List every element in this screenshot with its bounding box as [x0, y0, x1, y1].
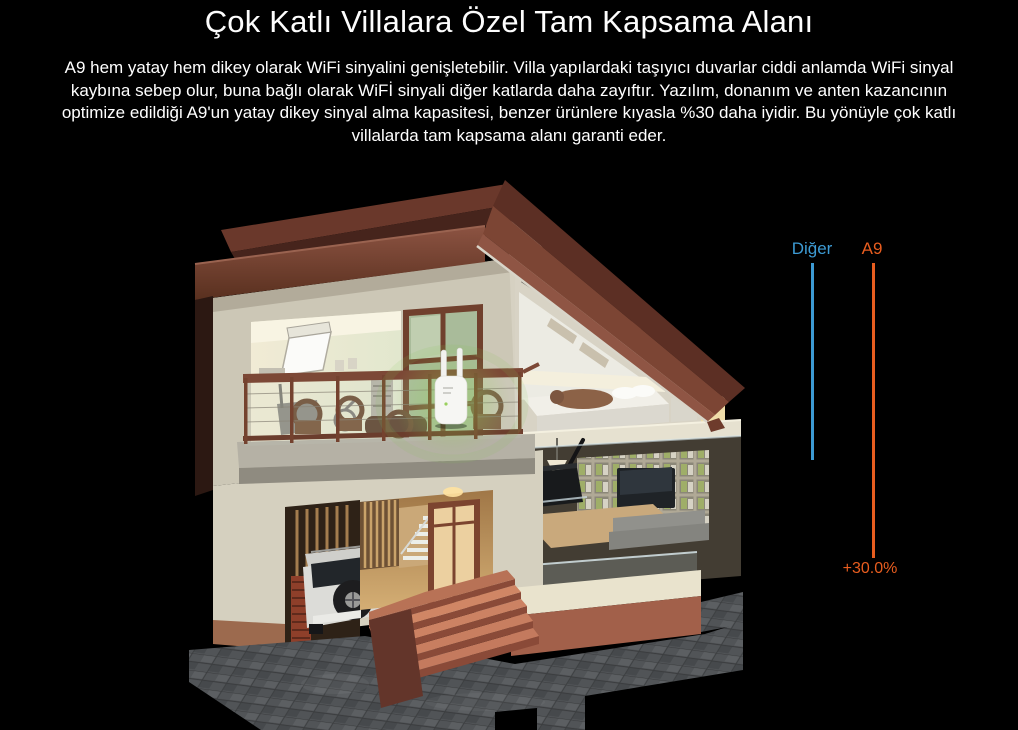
competitor-line — [811, 263, 814, 460]
page-title: Çok Katlı Villalara Özel Tam Kapsama Ala… — [0, 4, 1018, 40]
promo-section: Çok Katlı Villalara Özel Tam Kapsama Ala… — [0, 0, 1018, 730]
reflection — [301, 674, 369, 694]
left-corner-shadow — [195, 296, 213, 496]
product-line — [872, 263, 875, 558]
antenna — [441, 350, 447, 380]
product-label: A9 — [862, 239, 883, 259]
villa-cutaway-image — [185, 172, 785, 730]
skylight-window — [281, 332, 331, 376]
gain-label: +30.0% — [843, 560, 898, 578]
wifi-extender — [380, 344, 524, 460]
antenna — [457, 348, 463, 380]
extender-body — [435, 376, 467, 424]
competitor-label: Diğer — [792, 239, 833, 259]
villa-illustration — [185, 172, 785, 730]
wall-lamp — [443, 487, 463, 497]
page-description: A9 hem yatay hem dikey olarak WiFi sinya… — [46, 57, 972, 147]
